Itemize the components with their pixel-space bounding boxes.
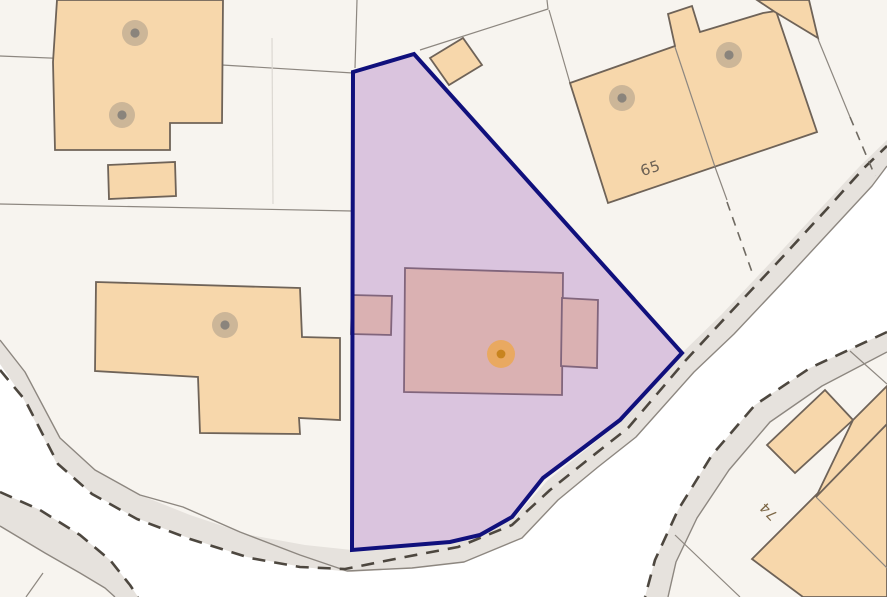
building-northwest-shed[interactable]: [108, 162, 176, 199]
address-dot-icon: [220, 320, 229, 329]
address-dot-icon: [130, 28, 139, 37]
cadastral-map[interactable]: 6574: [0, 0, 887, 597]
selected-point-icon: [497, 350, 506, 359]
address-dot-icon: [724, 50, 733, 59]
map-canvas[interactable]: 6574: [0, 0, 887, 597]
address-dot-icon: [117, 110, 126, 119]
address-dot-icon: [617, 93, 626, 102]
